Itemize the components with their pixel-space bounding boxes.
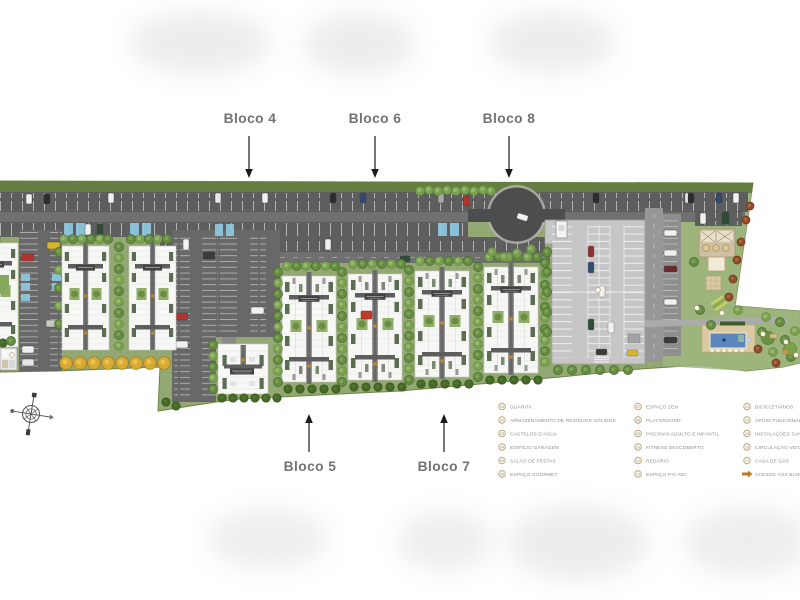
svg-text:10: 10 — [636, 445, 641, 450]
svg-text:APOIO FUNCIONAL: APOIO FUNCIONAL — [755, 418, 800, 424]
svg-text:SALÃO DE FESTAS: SALÃO DE FESTAS — [510, 457, 556, 464]
svg-text:01: 01 — [500, 404, 505, 409]
svg-text:CASA DE GÁS: CASA DE GÁS — [755, 457, 789, 464]
svg-text:Bloco 5: Bloco 5 — [284, 459, 337, 474]
svg-text:12: 12 — [636, 472, 641, 477]
svg-text:PLAYGROUND: PLAYGROUND — [646, 418, 681, 424]
svg-text:ARMAZENAMENTO DE RESÍDUOS SÓLI: ARMAZENAMENTO DE RESÍDUOS SÓLIDOS — [510, 417, 616, 424]
svg-text:05: 05 — [500, 458, 505, 463]
svg-text:09: 09 — [636, 431, 641, 436]
svg-text:06: 06 — [500, 472, 505, 477]
svg-text:03: 03 — [500, 431, 505, 436]
svg-text:Bloco 8: Bloco 8 — [483, 111, 536, 126]
svg-text:ESPAÇO PIC-NIC: ESPAÇO PIC-NIC — [646, 472, 687, 478]
svg-text:INSTALAÇÕES SANITÁRIAS: INSTALAÇÕES SANITÁRIAS — [755, 430, 800, 437]
svg-text:CIRCULAÇÃO VEÍCULOS: CIRCULAÇÃO VEÍCULOS — [755, 444, 800, 451]
svg-text:PISCINAS ADULTO E INFANTIL: PISCINAS ADULTO E INFANTIL — [646, 431, 719, 437]
svg-text:GUARITA: GUARITA — [510, 404, 533, 410]
svg-text:04: 04 — [500, 445, 505, 450]
svg-text:Bloco 4: Bloco 4 — [224, 111, 277, 126]
svg-text:Bloco 7: Bloco 7 — [418, 459, 471, 474]
svg-text:07: 07 — [636, 404, 641, 409]
svg-text:CASTELOS D’ÁGUA: CASTELOS D’ÁGUA — [510, 430, 558, 437]
svg-text:ESPAÇO GOURMET: ESPAÇO GOURMET — [510, 472, 558, 478]
svg-text:ESPAÇO ZEN: ESPAÇO ZEN — [646, 404, 678, 410]
svg-text:02: 02 — [500, 418, 505, 423]
svg-text:ACESSO AOS BLOCOS: ACESSO AOS BLOCOS — [755, 472, 800, 478]
svg-text:Bloco 6: Bloco 6 — [349, 111, 402, 126]
svg-text:EDIFÍCIO GARAGEM: EDIFÍCIO GARAGEM — [510, 444, 559, 451]
svg-text:REDÁRIO: REDÁRIO — [646, 457, 669, 464]
svg-text:08: 08 — [636, 418, 641, 423]
svg-text:16: 16 — [745, 445, 750, 450]
svg-text:14: 14 — [745, 418, 750, 423]
svg-text:17: 17 — [745, 458, 750, 463]
svg-text:BICICLETÁRIOS: BICICLETÁRIOS — [755, 403, 793, 410]
svg-text:13: 13 — [745, 404, 750, 409]
svg-text:FITNESS DESCOBERTO: FITNESS DESCOBERTO — [646, 445, 704, 451]
svg-text:15: 15 — [745, 431, 750, 436]
